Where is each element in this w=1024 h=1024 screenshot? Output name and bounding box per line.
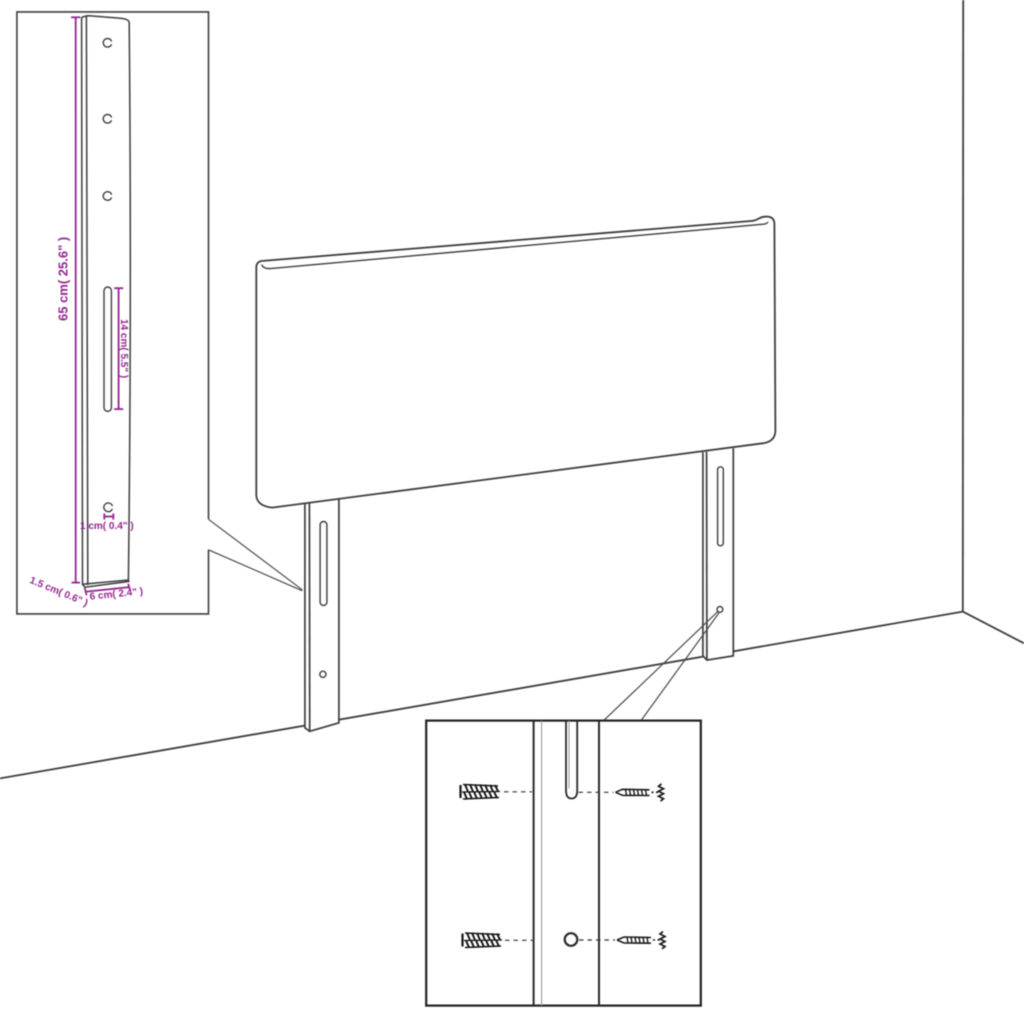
svg-text:1 cm( 0.4" ): 1 cm( 0.4" ): [80, 521, 134, 532]
svg-text:65 cm( 25.6" ): 65 cm( 25.6" ): [56, 237, 71, 321]
svg-text:14 cm( 5.5" ): 14 cm( 5.5" ): [118, 319, 129, 378]
